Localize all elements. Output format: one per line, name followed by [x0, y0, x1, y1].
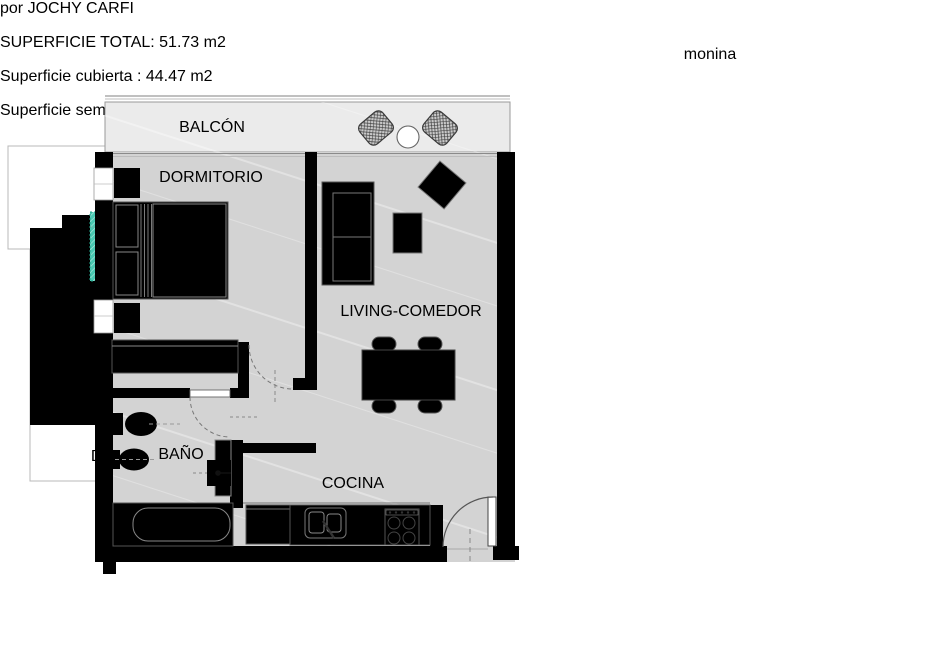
balcony-table-icon [397, 126, 419, 148]
double-bed-icon [113, 202, 228, 299]
nightstand-icon [114, 303, 140, 333]
surface-covered: Superficie cubierta : 44.47 m2 [0, 68, 928, 86]
kitchen-label: COCINA [322, 475, 385, 492]
main-floorplan: BALCÓN [85, 88, 525, 588]
nightstand-icon [114, 168, 140, 198]
wardrobe-icon [112, 340, 238, 373]
door-leaf [190, 390, 230, 397]
project-title: monina [578, 46, 842, 64]
stove-icon [385, 509, 419, 545]
project-subtitle: por JOCHY CARFI [0, 0, 928, 18]
living-label: LIVING-COMEDOR [340, 303, 481, 320]
balcony-label: BALCÓN [179, 117, 245, 136]
bathroom-label: BAÑO [158, 443, 203, 463]
floorplan-sheet: BALCÓN [0, 0, 928, 670]
bedroom-label: DORMITORIO [159, 169, 263, 186]
side-table-icon [393, 213, 422, 253]
fridge-icon [246, 505, 290, 544]
balcony-area: BALCÓN [105, 96, 510, 152]
entrance-door-leaf [488, 497, 496, 546]
bathtub-icon [113, 503, 233, 546]
kitchen-sink-icon [305, 508, 346, 538]
sofa-icon [322, 182, 374, 285]
